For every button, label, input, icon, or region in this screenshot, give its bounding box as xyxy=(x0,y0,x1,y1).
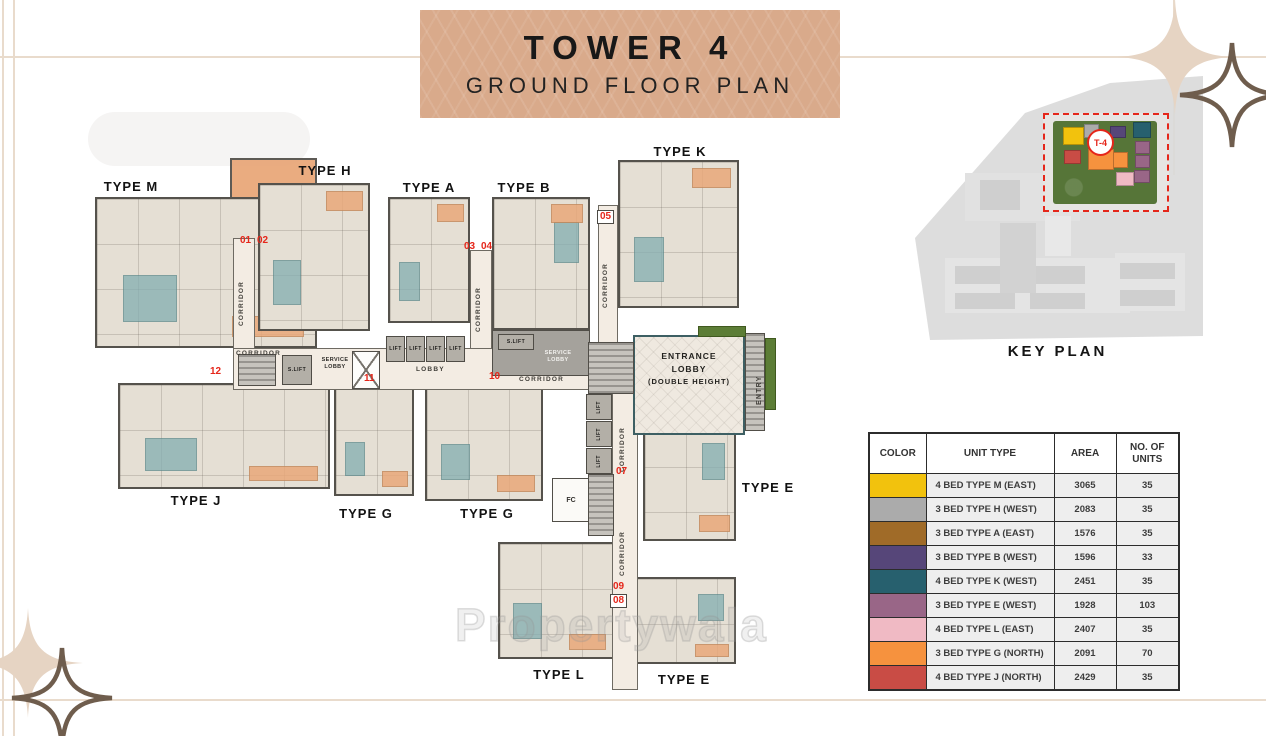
unit-type-e-right xyxy=(643,420,736,541)
legend-units-count: 70 xyxy=(1116,642,1179,666)
legend-unit-type: 3 BED TYPE E (WEST) xyxy=(926,594,1054,618)
lift-7: LIFT xyxy=(586,448,612,474)
lift-3: LIFT xyxy=(426,336,445,362)
legend-units-count: 35 xyxy=(1116,498,1179,522)
stairs-spine-right xyxy=(588,342,634,394)
legend-row: 3 BED TYPE B (WEST)159633 xyxy=(869,546,1179,570)
corridor-a-b-label: CORRIDOR xyxy=(475,268,482,332)
sparkle-filled-icon xyxy=(0,608,83,718)
legend-row: 3 BED TYPE G (NORTH)209170 xyxy=(869,642,1179,666)
legend-units-count: 33 xyxy=(1116,546,1179,570)
fc-label: FC xyxy=(566,497,575,504)
label-type-a: TYPE A xyxy=(403,180,455,195)
sparkle-decoration-bottom-left xyxy=(0,600,200,736)
unit-number-02: 02 xyxy=(257,236,268,246)
label-type-k: TYPE K xyxy=(654,144,707,159)
legend-row: 4 BED TYPE K (WEST)245135 xyxy=(869,570,1179,594)
unit-number-03: 03 xyxy=(464,242,475,252)
corridor-b-k-label: CORRIDOR xyxy=(602,244,609,308)
unit-type-j xyxy=(118,383,330,489)
sparkle-filled-icon xyxy=(1117,0,1233,115)
service-lift-b-label: S.LIFT xyxy=(507,339,525,345)
legend-area: 1576 xyxy=(1054,522,1116,546)
corridor-spine-left-label: CORRIDOR xyxy=(236,350,281,357)
legend-color-swatch xyxy=(869,522,926,546)
legend-row: 4 BED TYPE L (EAST)240735 xyxy=(869,618,1179,642)
title-banner: TOWER 4 GROUND FLOOR PLAN xyxy=(420,10,840,118)
legend-color-swatch xyxy=(869,546,926,570)
unit-number-01: 01 xyxy=(240,236,251,246)
legend-row: 4 BED TYPE M (EAST)306535 xyxy=(869,474,1179,498)
legend-area: 1928 xyxy=(1054,594,1116,618)
label-type-g-right: TYPE G xyxy=(460,506,514,521)
key-plan-title: KEY PLAN xyxy=(905,343,1210,360)
unit-number-04: 04 xyxy=(481,242,492,252)
legend-area: 1596 xyxy=(1054,546,1116,570)
label-type-l: TYPE L xyxy=(533,667,585,682)
legend-area: 2091 xyxy=(1054,642,1116,666)
legend-unit-type: 3 BED TYPE A (EAST) xyxy=(926,522,1054,546)
planter-strip-top xyxy=(698,326,746,337)
service-lift-spine: S.LIFT xyxy=(282,355,312,385)
unit-type-g-left xyxy=(334,383,414,496)
label-type-e-right: TYPE E xyxy=(742,480,794,495)
legend-color-swatch xyxy=(869,474,926,498)
corridor-m-h-label: CORRIDOR xyxy=(238,262,245,326)
legend-color-swatch xyxy=(869,570,926,594)
lift-5: LIFT xyxy=(586,394,612,420)
page-subtitle: GROUND FLOOR PLAN xyxy=(466,73,794,99)
label-type-m: TYPE M xyxy=(104,179,158,194)
legend-area: 2083 xyxy=(1054,498,1116,522)
sparkle-decoration-top-right xyxy=(1080,0,1266,195)
legend-table-body: 4 BED TYPE M (EAST)3065353 BED TYPE H (W… xyxy=(869,474,1179,691)
lift-2-label: LIFT xyxy=(409,346,422,352)
legend-row: 4 BED TYPE J (NORTH)242935 xyxy=(869,666,1179,691)
corridor-spine-right-label: CORRIDOR xyxy=(519,376,564,383)
lift-1: LIFT xyxy=(386,336,405,362)
lift-4-label: LIFT xyxy=(449,346,462,352)
unit-type-k xyxy=(618,160,739,308)
unit-number-07: 07 xyxy=(616,467,627,477)
unit-type-g-right xyxy=(425,383,543,501)
legend-color-swatch xyxy=(869,618,926,642)
service-lobby-spine-label: SERVICE LOBBY xyxy=(314,357,356,371)
label-type-e-bottom: TYPE E xyxy=(658,672,710,687)
unit-number-05: 05 xyxy=(597,210,614,224)
key-plan-block-red xyxy=(1064,150,1081,164)
legend-color-swatch xyxy=(869,498,926,522)
label-type-g-left: TYPE G xyxy=(339,506,393,521)
legend-area: 3065 xyxy=(1054,474,1116,498)
watermark: Propertywala xyxy=(455,598,768,652)
corridor-central-label-1: CORRIDOR xyxy=(619,412,626,472)
legend-units-count: 35 xyxy=(1116,474,1179,498)
legend-color-swatch xyxy=(869,642,926,666)
stairs-spine-left xyxy=(238,354,276,386)
label-type-h: TYPE H xyxy=(299,163,352,178)
unit-number-10: 10 xyxy=(489,372,500,382)
unit-number-11: 11 xyxy=(364,374,375,384)
legend-row: 3 BED TYPE H (WEST)208335 xyxy=(869,498,1179,522)
unit-type-b xyxy=(492,197,590,330)
legend-unit-type: 4 BED TYPE M (EAST) xyxy=(926,474,1054,498)
unit-number-12: 12 xyxy=(210,367,221,377)
entrance-lobby-line2: LOBBY xyxy=(641,363,737,376)
legend-units-count: 103 xyxy=(1116,594,1179,618)
lift-5-label: LIFT xyxy=(596,401,602,414)
lobby-label: LOBBY xyxy=(416,366,445,373)
service-lift-spine-label: S.LIFT xyxy=(288,367,306,373)
service-lobby-b-label: SERVICE LOBBY xyxy=(536,350,580,364)
legend-unit-type: 3 BED TYPE B (WEST) xyxy=(926,546,1054,570)
stairs-central xyxy=(588,474,614,536)
lift-6: LIFT xyxy=(586,421,612,447)
service-lift-b: S.LIFT xyxy=(498,334,534,350)
legend-unit-type: 4 BED TYPE J (NORTH) xyxy=(926,666,1054,691)
legend-unit-type: 4 BED TYPE K (WEST) xyxy=(926,570,1054,594)
legend-color-swatch xyxy=(869,594,926,618)
legend-area: 2429 xyxy=(1054,666,1116,691)
legend-area: 2451 xyxy=(1054,570,1116,594)
legend-table: COLOR UNIT TYPE AREA NO. OF UNITS 4 BED … xyxy=(868,432,1180,691)
label-type-j: TYPE J xyxy=(171,493,222,508)
lift-6-label: LIFT xyxy=(596,428,602,441)
legend-header-area: AREA xyxy=(1054,433,1116,474)
legend-units-count: 35 xyxy=(1116,618,1179,642)
unit-number-09: 09 xyxy=(613,582,624,592)
label-type-b: TYPE B xyxy=(498,180,551,195)
entrance-lobby-line1: ENTRANCE xyxy=(641,350,737,363)
corridor-central-label-2: CORRIDOR xyxy=(619,516,626,576)
legend-header-row: COLOR UNIT TYPE AREA NO. OF UNITS xyxy=(869,433,1179,474)
entrance-lobby-label: ENTRANCE LOBBY (DOUBLE HEIGHT) xyxy=(641,350,737,387)
entrance-lobby-line3: (DOUBLE HEIGHT) xyxy=(641,376,737,387)
unit-type-h xyxy=(258,183,370,331)
legend-row: 3 BED TYPE E (WEST)1928103 xyxy=(869,594,1179,618)
legend-unit-type: 3 BED TYPE G (NORTH) xyxy=(926,642,1054,666)
lift-7-label: LIFT xyxy=(596,455,602,468)
lift-4: LIFT xyxy=(446,336,465,362)
legend-units-count: 35 xyxy=(1116,666,1179,691)
legend-row: 3 BED TYPE A (EAST)157635 xyxy=(869,522,1179,546)
legend-color-swatch xyxy=(869,666,926,691)
legend-unit-type: 4 BED TYPE L (EAST) xyxy=(926,618,1054,642)
lift-3-label: LIFT xyxy=(429,346,442,352)
lift-2: LIFT xyxy=(406,336,425,362)
fc-room: FC xyxy=(552,478,590,522)
legend-area: 2407 xyxy=(1054,618,1116,642)
legend-header-unit-type: UNIT TYPE xyxy=(926,433,1054,474)
lift-1-label: LIFT xyxy=(389,346,402,352)
page-title: TOWER 4 xyxy=(524,29,737,67)
legend-units-count: 35 xyxy=(1116,570,1179,594)
entry-label: ENTRY xyxy=(756,360,763,405)
unit-type-a xyxy=(388,197,470,323)
legend-header-units: NO. OF UNITS xyxy=(1116,433,1179,474)
legend-units-count: 35 xyxy=(1116,522,1179,546)
planter-strip-right xyxy=(765,338,776,410)
legend-header-color: COLOR xyxy=(869,433,926,474)
legend-unit-type: 3 BED TYPE H (WEST) xyxy=(926,498,1054,522)
